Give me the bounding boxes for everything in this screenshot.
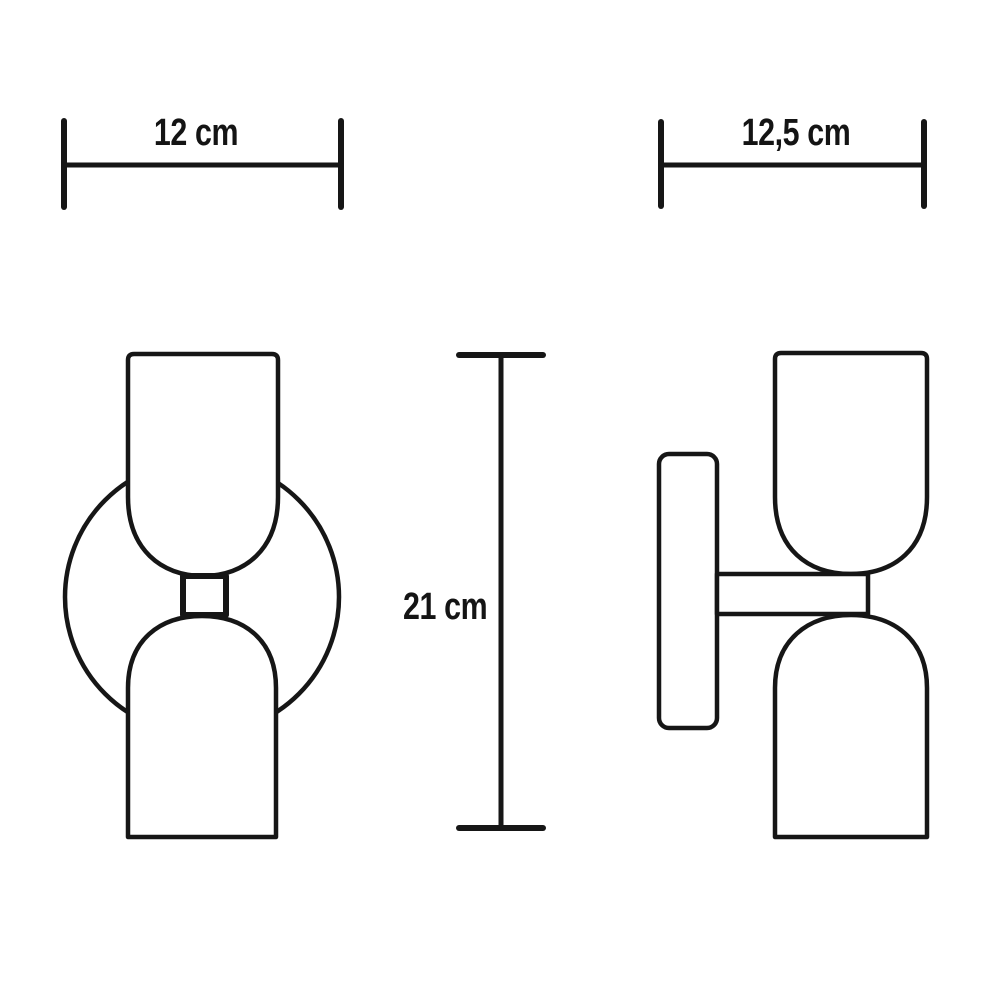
front-width-dimension-label: 12 cm — [154, 114, 238, 152]
front-view-connector — [183, 576, 226, 615]
height-dimension-label: 21 cm — [403, 588, 487, 626]
dimension-diagram: 12 cm 12,5 cm 21 cm — [0, 0, 1000, 1000]
side-view — [659, 353, 927, 837]
side-view-wall-plate — [659, 454, 717, 728]
front-view-lower-shade — [128, 616, 276, 837]
side-view-lower-shade — [775, 615, 927, 837]
front-view — [65, 354, 339, 837]
side-view-upper-shade — [775, 353, 927, 574]
side-depth-dimension-label: 12,5 cm — [742, 114, 851, 152]
side-view-arm — [717, 574, 868, 614]
front-view-upper-shade — [128, 354, 278, 576]
